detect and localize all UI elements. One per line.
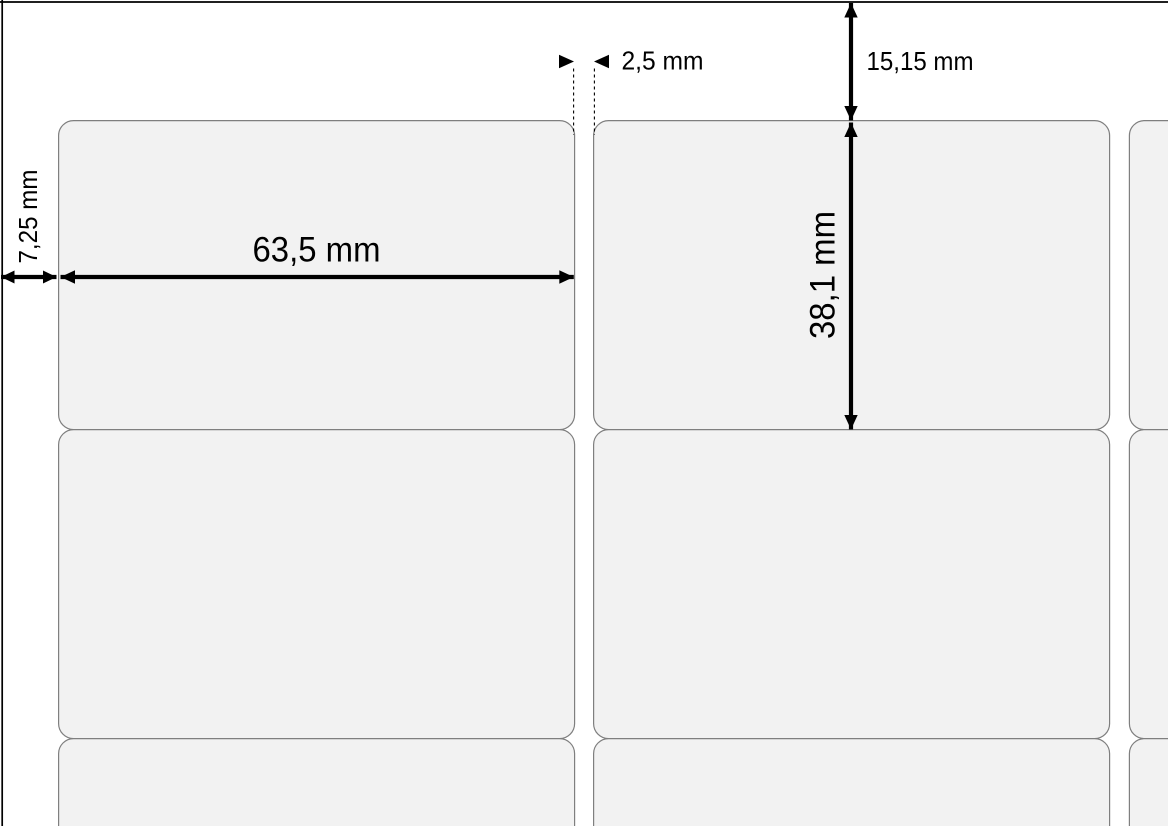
svg-text:7,25 mm: 7,25 mm <box>13 170 43 264</box>
svg-text:63,5 mm: 63,5 mm <box>253 230 381 269</box>
svg-text:2,5 mm: 2,5 mm <box>622 46 704 76</box>
svg-text:15,15 mm: 15,15 mm <box>867 46 974 76</box>
svg-text:38,1 mm: 38,1 mm <box>804 211 843 339</box>
